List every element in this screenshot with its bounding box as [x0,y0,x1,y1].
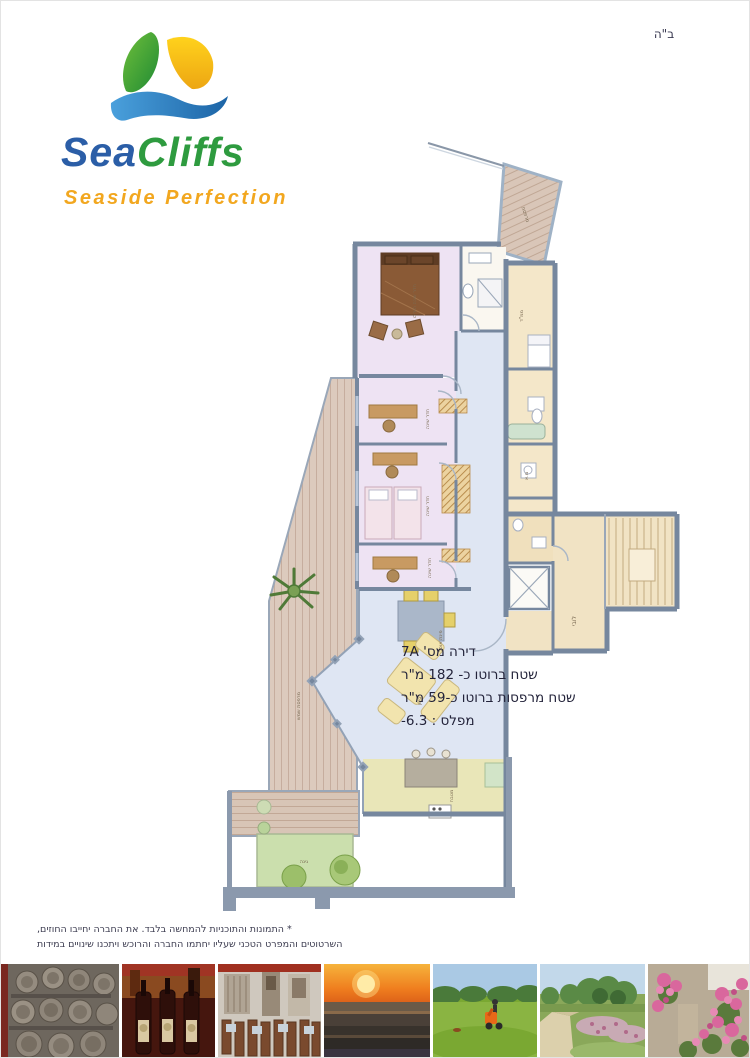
label-bedroom: חדר שינה [425,409,431,429]
legal-disclaimer: * התמונות והתוכניות להמחשה בלבד. את החבר… [37,922,399,952]
label-bedroom: חדר שינה [427,558,433,578]
desk [369,405,417,418]
label-laundry: מ.א [524,472,530,480]
disclaimer-line1: * התמונות והתוכניות להמחשה בלבד. את החבר… [37,922,399,937]
leaf-yellow-icon [167,37,213,89]
label-deck: מרפסת שמש [296,692,302,720]
apartment-info: דירה מס' 7A שטח ברוטו כ- 182 מ"ר שטח מרפ… [401,641,713,733]
photo-golf-course [433,964,537,1058]
brochure-page: ב"ה SeaCliffs Seaside Perfection [0,0,750,1058]
disclaimer-line2: השרטוטים והמפרט הטכני שעליו יחתמו החברה … [37,937,399,952]
photo-sea-sunset [324,964,430,1058]
label-garden: גינה [300,859,308,865]
apartment-number: דירה מס' 7A [401,641,713,664]
label-kitchen: מטבח [449,790,455,803]
photo-restaurant [218,964,321,1058]
label-lobby: לובי [571,616,578,626]
apartment-level: מפלס : 6.3- [401,710,713,733]
upper-balcony [498,164,561,265]
photo-wine-barrels [1,964,119,1058]
label-bedroom: חדר שינה [425,496,431,516]
apartment-gross-area: שטח ברוטו כ- 182 מ"ר [401,664,713,687]
floor-plan: חדר שינה הורים חדר שינה חדר שינה חדר שינ… [201,136,706,911]
label-mamad: ממ"ד [519,310,525,322]
wave-icon [111,92,228,121]
apartment-balcony-area: שטח מרפסות ברוטו כ-59 מ"ר [401,687,713,710]
seacliffs-logo-icon [104,27,236,135]
photo-pink-flowers [648,964,750,1058]
logo-sea: Sea [61,129,137,175]
photo-garden-path [540,964,645,1058]
elevator [509,567,549,609]
photo-wine-bottles [122,964,215,1058]
label-master: חדר שינה הורים [412,284,418,318]
bh-mark: ב"ה [639,27,689,41]
photo-strip [1,964,750,1058]
leaf-green-icon [123,32,159,92]
kitchen-island [405,759,457,787]
